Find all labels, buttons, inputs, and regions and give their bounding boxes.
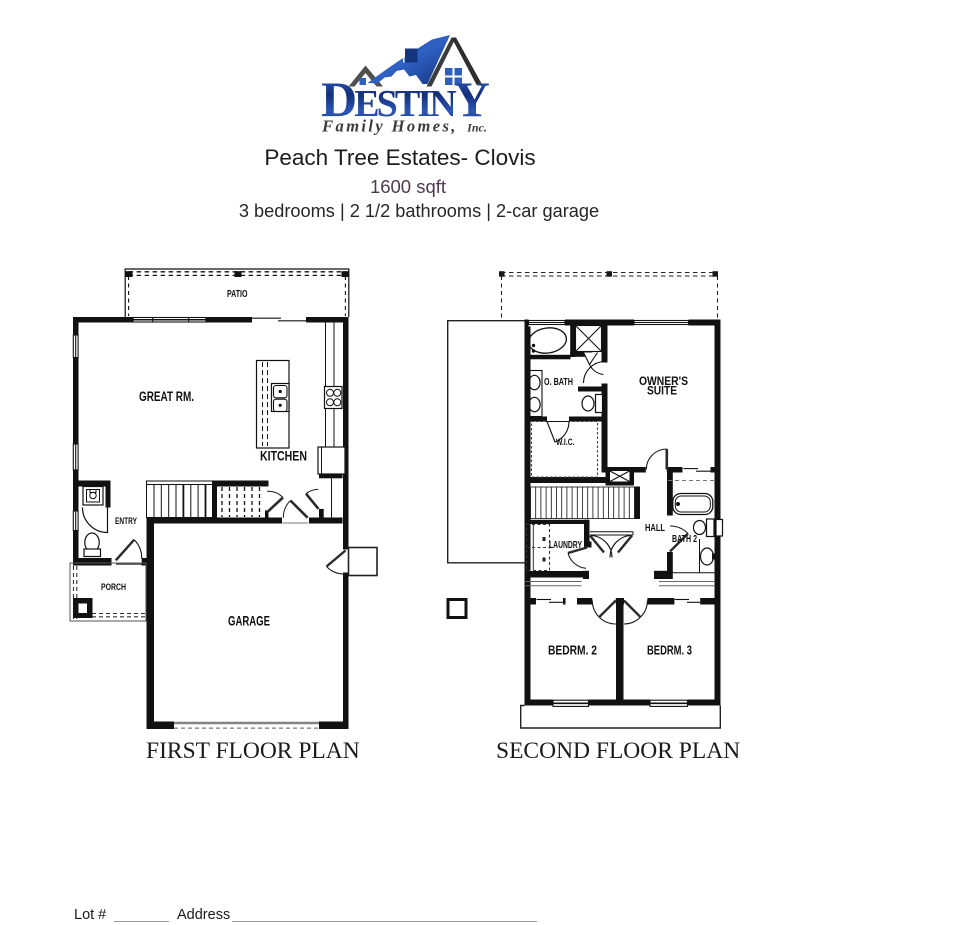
svg-text:BEDRM. 2: BEDRM. 2 (548, 643, 597, 658)
svg-text:W.I.C.: W.I.C. (556, 437, 575, 447)
svg-text:GREAT RM.: GREAT RM. (139, 389, 194, 404)
svg-text:HALL: HALL (645, 522, 665, 534)
svg-text:KITCHEN: KITCHEN (260, 449, 307, 464)
svg-text:PORCH: PORCH (101, 582, 126, 593)
svg-text:LAUNDRY: LAUNDRY (549, 540, 582, 551)
svg-text:BEDRM. 3: BEDRM. 3 (647, 643, 692, 658)
svg-text:BATH 2: BATH 2 (672, 533, 697, 545)
svg-text:GARAGE: GARAGE (228, 613, 270, 629)
svg-text:SUITE: SUITE (647, 386, 677, 398)
svg-text:O. BATH: O. BATH (544, 377, 573, 388)
svg-text:PATIO: PATIO (227, 289, 248, 300)
svg-text:ENTRY: ENTRY (115, 516, 137, 527)
